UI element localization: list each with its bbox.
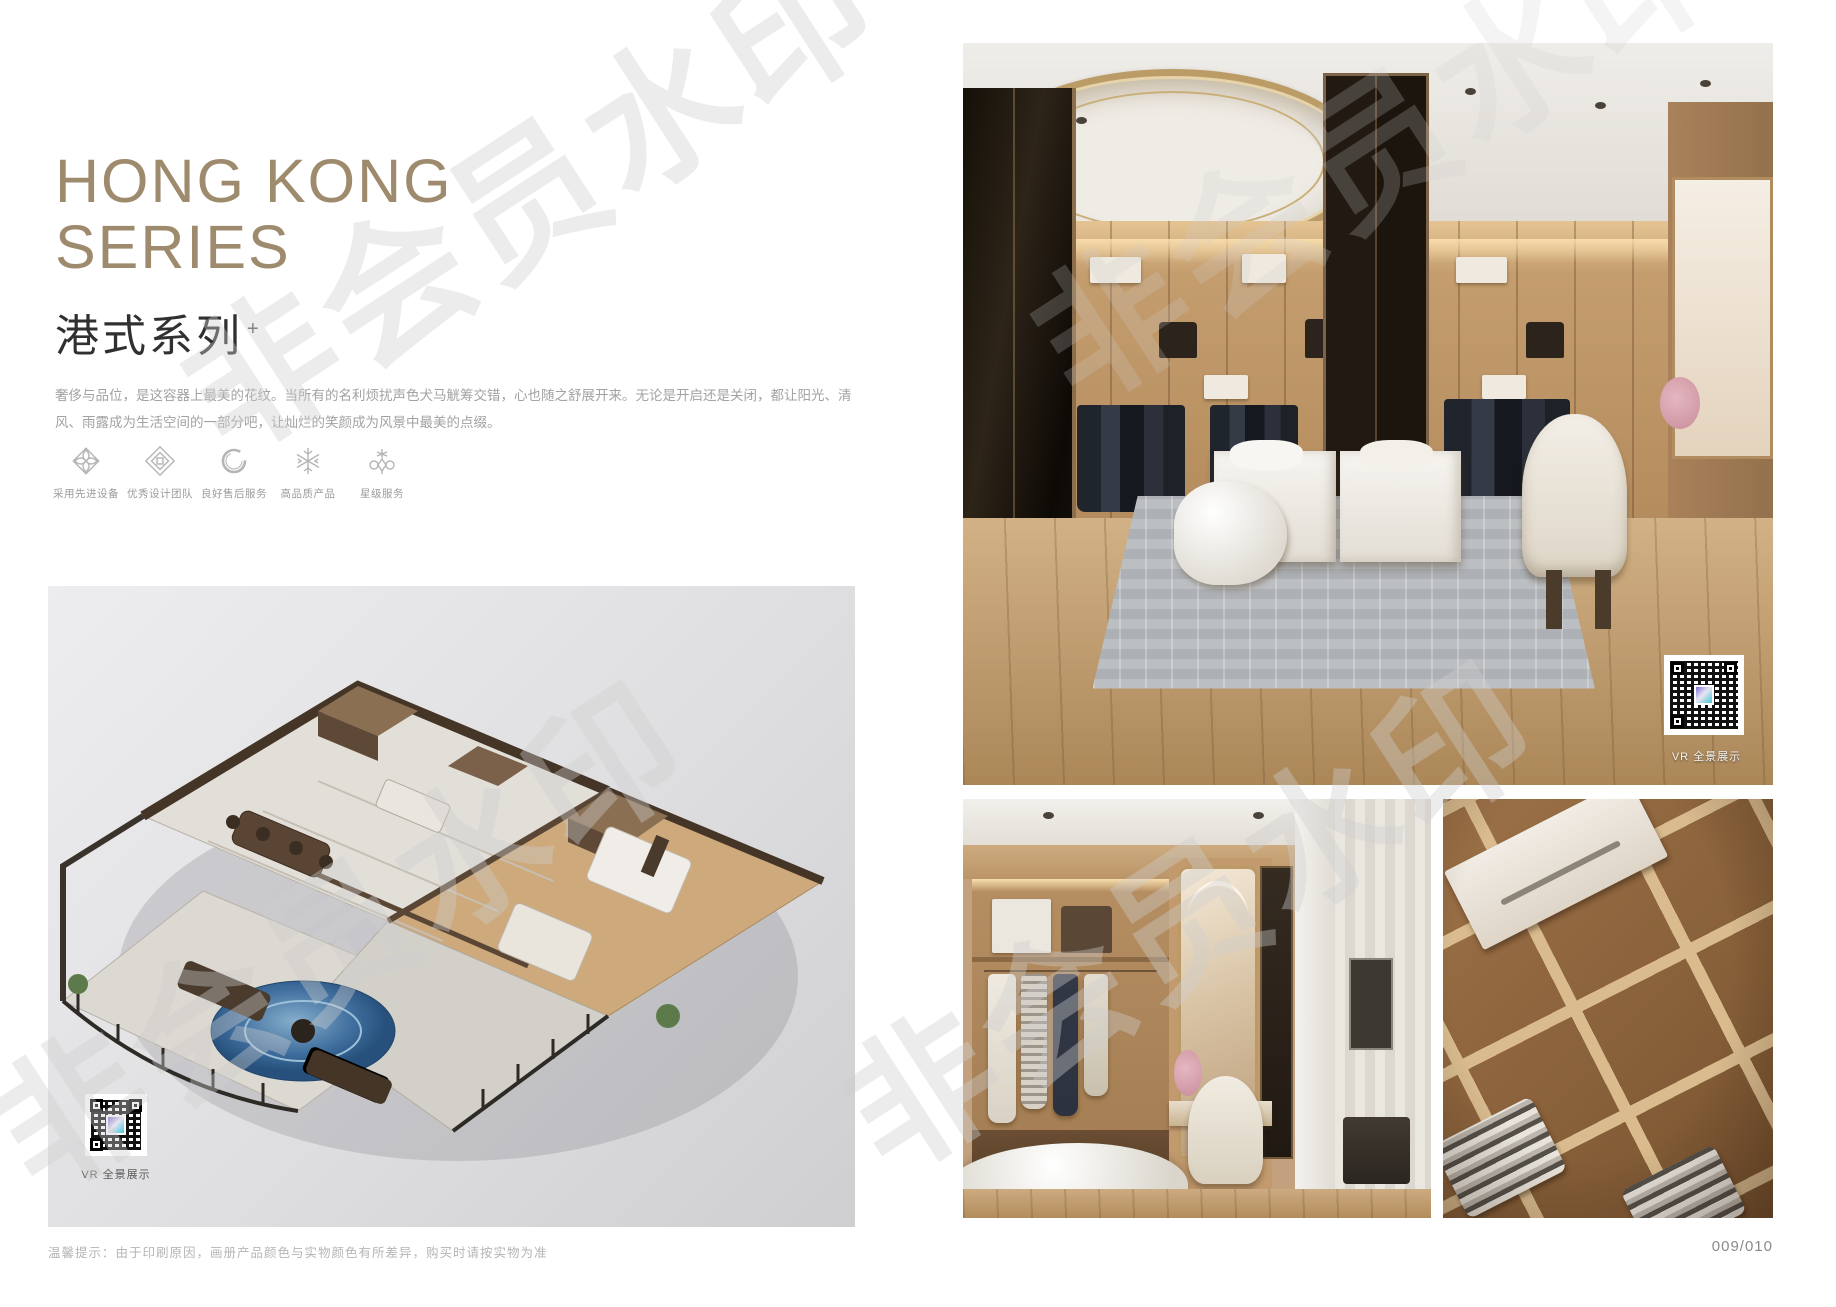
feature-label: 高品质产品 <box>281 486 336 501</box>
title-line-2: SERIES <box>55 214 453 280</box>
floorplan-render <box>48 586 855 1227</box>
qr-corner <box>1671 662 1684 675</box>
feature-after-sales: 良好售后服务 <box>200 444 268 501</box>
photo-vignette <box>1443 799 1773 1218</box>
qr-cube-logo-icon <box>106 1115 126 1135</box>
folded-clothes-stack <box>1204 375 1248 399</box>
wood-floor <box>963 1189 1431 1218</box>
vanity-chair <box>1188 1076 1263 1185</box>
series-title-chinese: 港式系列+ <box>55 300 262 364</box>
feature-label: 星级服务 <box>360 486 404 501</box>
vanity-chair <box>1522 414 1627 577</box>
pink-flowers <box>1660 377 1701 429</box>
floorplan-panel: VR 全景展示 <box>48 586 855 1227</box>
main-photo-vr-label: VR 全景展示 <box>1652 748 1762 764</box>
qr-corner <box>90 1138 103 1151</box>
qr-corner <box>90 1099 103 1112</box>
hanging-garment-beige <box>1084 974 1108 1096</box>
ceiling-spotlight <box>1465 88 1476 95</box>
footer-disclaimer: 温馨提示：由于印刷原因，画册产品颜色与实物颜色有所差异，购买时请按实物为准 <box>48 1242 548 1261</box>
feature-label: 良好售后服务 <box>201 486 267 501</box>
qr-corner <box>129 1099 142 1112</box>
ceiling-spotlight <box>1253 812 1264 819</box>
handbag <box>1159 322 1197 358</box>
description-line-2: 风、雨露成为生活空间的一部分吧，让灿烂的笑颜成为风景中最美的点缀。 <box>55 409 852 436</box>
folded-clothes-stack <box>1456 257 1507 284</box>
description-line-1: 奢侈与品位，是这容器上最美的花纹。当所有的名利烦扰声色犬马觥筹交错，心也随之舒展… <box>55 382 852 409</box>
feature-list: 采用先进设备 优秀设计团队 良好售后服务 高品质产品 <box>52 444 416 501</box>
wall-picture-frame <box>1349 958 1392 1050</box>
shelf-board <box>972 957 1169 962</box>
adjacent-bedroom-view <box>1335 799 1431 1218</box>
snowflake-icon <box>291 444 325 478</box>
qr-cube-logo-icon <box>1694 685 1714 705</box>
catalog-page: 非会员水印 非会员水印 非会员水印 非会员水印 HONG KONG SERIES… <box>0 0 1836 1307</box>
photo-vanity-wardrobe <box>963 799 1431 1218</box>
diamond-ornament-icon <box>143 444 177 478</box>
page-number: 009/010 <box>1620 1238 1773 1255</box>
qr-corner <box>1671 715 1684 728</box>
hanging-garment-striped <box>1021 974 1047 1110</box>
feature-design-team: 优秀设计团队 <box>126 444 194 501</box>
series-title-english: HONG KONG SERIES <box>55 148 453 280</box>
pillow <box>1360 440 1433 470</box>
feature-label: 采用先进设备 <box>53 486 119 501</box>
ring-circle-icon <box>217 444 251 478</box>
feature-quality-product: 高品质产品 <box>274 444 342 501</box>
crown-ornament-icon <box>365 444 399 478</box>
chair-leg <box>1546 570 1562 629</box>
storage-box-white <box>992 899 1051 953</box>
hanging-rod <box>984 970 1157 972</box>
hanging-garment-white <box>988 974 1016 1123</box>
floorplan-vr-qr-code <box>85 1094 147 1156</box>
folded-clothes-stack <box>1242 254 1286 284</box>
storage-box-dark <box>1061 906 1112 954</box>
feature-label: 优秀设计团队 <box>127 486 193 501</box>
draped-blanket <box>1174 481 1287 585</box>
pink-flowers <box>1174 1050 1202 1096</box>
series-description: 奢侈与品位，是这容器上最美的花纹。当所有的名利烦扰声色犬马觥筹交错，心也随之舒展… <box>55 382 852 436</box>
plus-mark: + <box>247 318 262 340</box>
shelf-light-glow <box>972 879 1169 893</box>
pinwheel-ornament-icon <box>69 444 103 478</box>
feature-star-service: 星级服务 <box>348 444 416 501</box>
qr-corner <box>1724 662 1737 675</box>
folded-clothes-stack <box>1090 257 1141 284</box>
chair-leg <box>1595 570 1611 629</box>
white-pillar <box>1295 799 1335 1218</box>
pillow <box>1230 440 1303 470</box>
title-line-1: HONG KONG <box>55 148 453 214</box>
floorplan-vr-label: VR 全景展示 <box>68 1166 164 1182</box>
main-photo-vr-qr-code <box>1664 655 1744 735</box>
hanging-garment-navy <box>1053 974 1079 1117</box>
subtitle-text: 港式系列 <box>55 312 243 361</box>
ceiling-spotlight <box>1043 812 1054 819</box>
handbag <box>1526 322 1564 358</box>
feature-advanced-equipment: 采用先进设备 <box>52 444 120 501</box>
folded-clothes-stack <box>1482 375 1526 399</box>
photo-shelf-closeup <box>1443 799 1773 1218</box>
main-photo-walkin-closet: VR 全景展示 <box>963 43 1773 785</box>
bedroom-bench <box>1343 1117 1410 1184</box>
